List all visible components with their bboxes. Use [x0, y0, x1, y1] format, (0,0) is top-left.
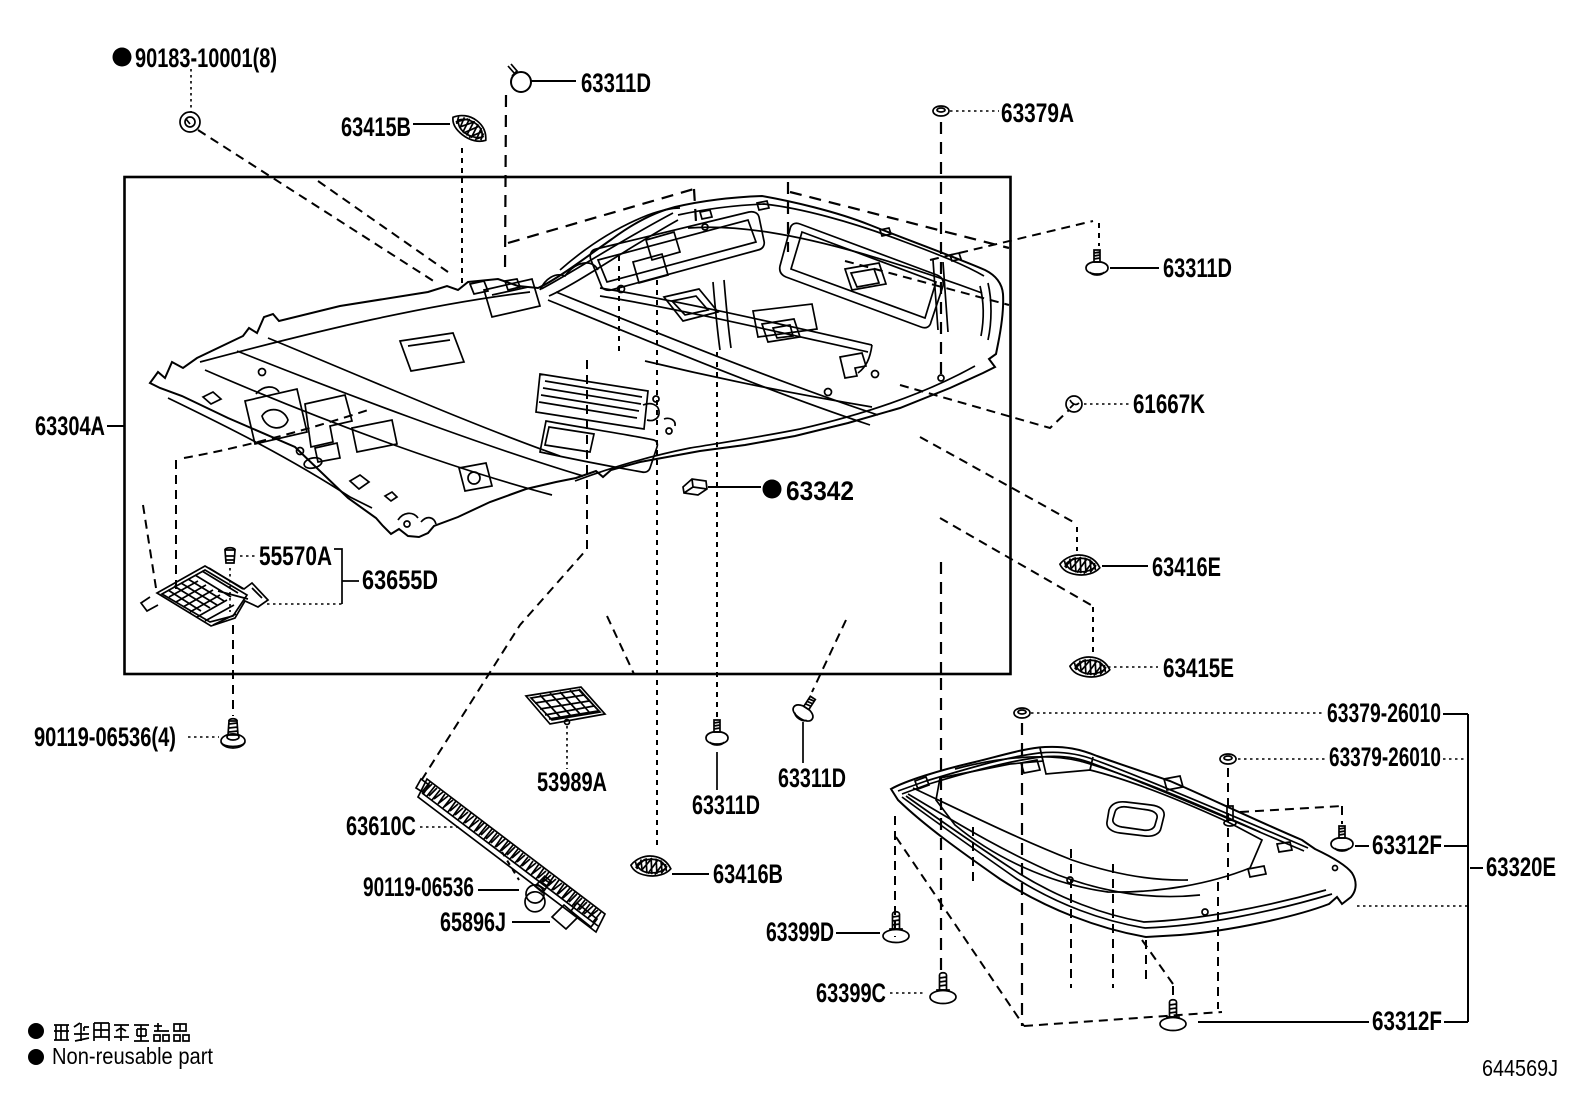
svg-text:63320E: 63320E [1486, 852, 1556, 882]
svg-text:61667K: 61667K [1133, 389, 1205, 419]
svg-text:63311D: 63311D [692, 790, 760, 820]
svg-text:63415B: 63415B [341, 112, 411, 142]
svg-text:63304A: 63304A [35, 411, 105, 441]
svg-text:Non-reusable part: Non-reusable part [52, 1043, 214, 1069]
svg-text:63416E: 63416E [1152, 552, 1221, 582]
svg-text:63311D: 63311D [581, 68, 651, 98]
svg-text:63655D: 63655D [362, 565, 438, 595]
svg-text:63416B: 63416B [713, 859, 783, 889]
svg-text:55570A: 55570A [259, 541, 332, 571]
svg-text:63399D: 63399D [766, 917, 834, 947]
svg-text:644569J: 644569J [1482, 1055, 1558, 1081]
svg-text:63312F: 63312F [1372, 1006, 1442, 1036]
svg-text:63311D: 63311D [778, 763, 846, 793]
svg-text:53989A: 53989A [537, 767, 607, 797]
svg-text:65896J: 65896J [440, 907, 506, 937]
svg-text:63415E: 63415E [1163, 653, 1234, 683]
svg-text:90119-06536: 90119-06536 [363, 872, 474, 902]
svg-text:63312F: 63312F [1372, 830, 1442, 860]
svg-text:63379-26010: 63379-26010 [1329, 742, 1441, 772]
svg-text:63399C: 63399C [816, 978, 886, 1008]
svg-text:63342: 63342 [786, 476, 854, 506]
svg-text:90183-10001(8): 90183-10001(8) [135, 43, 277, 73]
svg-text:63379A: 63379A [1001, 98, 1074, 128]
svg-text:90119-06536(4): 90119-06536(4) [34, 722, 176, 752]
svg-text:63311D: 63311D [1163, 253, 1232, 283]
svg-text:63610C: 63610C [346, 811, 416, 841]
svg-text:63379-26010: 63379-26010 [1327, 698, 1441, 728]
